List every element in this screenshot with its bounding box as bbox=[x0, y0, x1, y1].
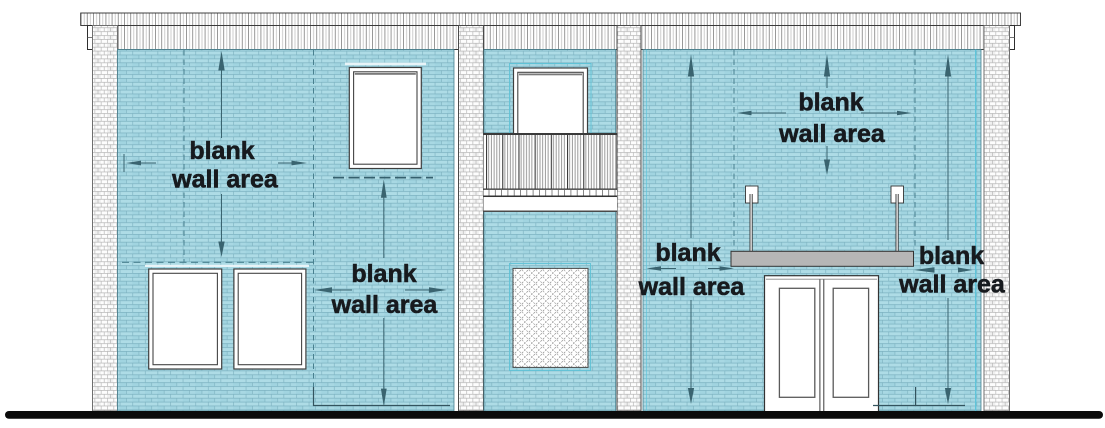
svg-text:wall area: wall area bbox=[638, 273, 746, 301]
svg-text:wall area: wall area bbox=[331, 291, 439, 319]
svg-text:blank: blank bbox=[798, 89, 863, 117]
svg-text:wall area: wall area bbox=[171, 166, 279, 194]
svg-text:wall area: wall area bbox=[898, 271, 1006, 299]
svg-text:blank: blank bbox=[919, 242, 984, 270]
svg-text:blank: blank bbox=[189, 137, 254, 165]
svg-text:blank: blank bbox=[351, 260, 416, 288]
svg-text:wall area: wall area bbox=[778, 120, 886, 148]
svg-text:blank: blank bbox=[655, 239, 720, 267]
